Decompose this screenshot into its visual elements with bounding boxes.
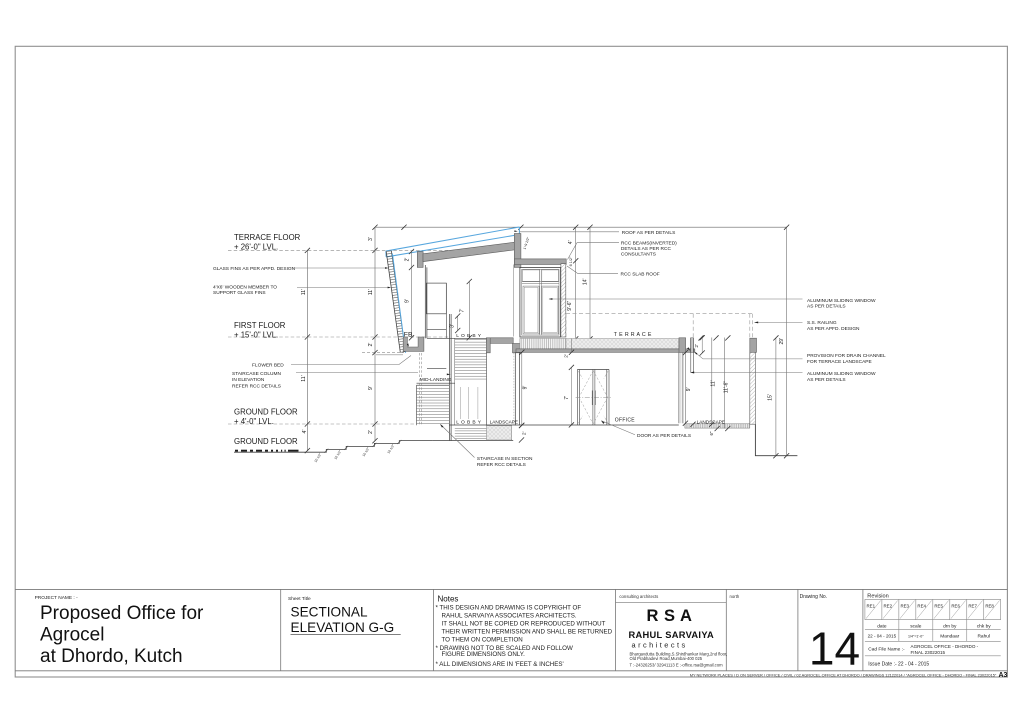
svg-text:OFFICE: OFFICE <box>615 418 635 424</box>
svg-text:DETAILS AS PER RCC: DETAILS AS PER RCC <box>621 246 672 252</box>
svg-text:THEIR WRITTEN PERMISSION AND S: THEIR WRITTEN PERMISSION AND SHALL BE RE… <box>442 629 613 636</box>
svg-text:at Dhordo, Kutch: at Dhordo, Kutch <box>40 646 183 667</box>
svg-text:AS PER DETAILS: AS PER DETAILS <box>807 377 846 383</box>
svg-text:+ 26'-0" LVL.: + 26'-0" LVL. <box>234 243 278 252</box>
svg-text:9': 9' <box>368 386 374 390</box>
svg-text:CONSULTANTS: CONSULTANTS <box>621 252 656 258</box>
svg-text:6": 6" <box>709 431 714 435</box>
svg-text:11': 11' <box>711 380 717 386</box>
svg-text:RE5: RE5 <box>934 604 943 609</box>
svg-text:GROUND FLOOR: GROUND FLOOR <box>234 437 298 446</box>
svg-text:14: 14 <box>809 622 860 674</box>
svg-text:ELEVATION G-G: ELEVATION G-G <box>291 620 395 635</box>
svg-text:LANDSCAPE: LANDSCAPE <box>697 420 725 425</box>
svg-text:PROJECT NAME : -: PROJECT NAME : - <box>35 595 78 601</box>
svg-text:4': 4' <box>302 430 308 434</box>
svg-text:a r c h i t e c t s: a r c h i t e c t s <box>632 641 686 650</box>
svg-text:ALUMINUM SLIDING WINDOW: ALUMINUM SLIDING WINDOW <box>807 298 876 304</box>
svg-text:T :-24326253/ 32941113 E :-of: T :-24326253/ 32941113 E :-office.rsa@gm… <box>630 663 724 668</box>
svg-text:Drawing No.: Drawing No. <box>800 594 828 600</box>
svg-text:STAIRCASE COLUMN: STAIRCASE COLUMN <box>232 371 281 377</box>
svg-text:* ALL DIMENSIONS ARE IN 'FEET: * ALL DIMENSIONS ARE IN 'FEET & INCHES' <box>436 661 564 668</box>
svg-text:2': 2' <box>368 430 374 434</box>
svg-text:11': 11' <box>301 375 307 381</box>
svg-text:RE4: RE4 <box>917 604 926 609</box>
svg-text:+ 15'-0" LVL.: + 15'-0" LVL. <box>234 331 278 340</box>
svg-text:2': 2' <box>405 258 411 262</box>
svg-text:drn by: drn by <box>943 623 957 629</box>
svg-text:AS PER DETAILS: AS PER DETAILS <box>807 304 846 310</box>
svg-text:ROOF AS PER DETAILS: ROOF AS PER DETAILS <box>622 230 676 236</box>
svg-text:FB: FB <box>404 331 413 338</box>
svg-text:11'-6": 11'-6" <box>724 381 730 394</box>
svg-text:Agrocel: Agrocel <box>40 624 104 645</box>
svg-text:Notes: Notes <box>438 595 459 604</box>
svg-text:14': 14' <box>583 279 589 286</box>
svg-text:L O B B Y: L O B B Y <box>456 419 481 425</box>
svg-text:ALUMINUM SLIDING WINDOW: ALUMINUM SLIDING WINDOW <box>807 371 876 377</box>
svg-text:DOOR AS PER DETAILS: DOOR AS PER DETAILS <box>637 433 691 439</box>
svg-text:T E R R A C E: T E R R A C E <box>614 332 652 338</box>
svg-text:PROVISION FOR DRAIN CHANNEL: PROVISION FOR DRAIN CHANNEL <box>807 353 886 359</box>
svg-text:R S A: R S A <box>647 607 693 625</box>
svg-text:Issue Date :- 22 - 04 - 2015: Issue Date :- 22 - 04 - 2015 <box>868 661 929 667</box>
svg-text:IT SHALL NOT BE COPIED OR REPR: IT SHALL NOT BE COPIED OR REPRODUCED WIT… <box>442 620 606 627</box>
svg-text:RCC BEAMS(INVERTED): RCC BEAMS(INVERTED) <box>621 241 677 247</box>
svg-text:MID-LANDING: MID-LANDING <box>420 377 452 383</box>
svg-text:REFER RCC DETAILS: REFER RCC DETAILS <box>477 462 526 468</box>
svg-text:RE2: RE2 <box>883 604 892 609</box>
svg-text:RE7: RE7 <box>968 604 977 609</box>
svg-text:11': 11' <box>368 289 374 295</box>
svg-text:RE8: RE8 <box>985 604 994 609</box>
svg-text:22 - 04 - 2015: 22 - 04 - 2015 <box>868 634 897 639</box>
svg-text:RE3: RE3 <box>900 604 909 609</box>
svg-text:FIRST FLOOR: FIRST FLOOR <box>234 321 286 330</box>
svg-text:A3: A3 <box>999 672 1008 679</box>
svg-text:Old Prabhadevi Road,Mumbai-400: Old Prabhadevi Road,Mumbai-400 025 <box>630 656 703 661</box>
svg-text:FOR TERRACE LANDSCAPE: FOR TERRACE LANDSCAPE <box>807 359 872 365</box>
svg-text:3': 3' <box>450 324 456 328</box>
svg-text:2': 2' <box>368 343 374 347</box>
svg-text:TO THEM ON COMPLETION: TO THEM ON COMPLETION <box>442 637 523 644</box>
svg-text:4': 4' <box>568 240 574 244</box>
svg-text:2': 2' <box>564 354 570 358</box>
svg-text:L O B B Y: L O B B Y <box>456 333 481 339</box>
svg-text:date: date <box>877 623 887 629</box>
svg-text:AS PER APFD. DESIGN: AS PER APFD. DESIGN <box>807 326 860 332</box>
svg-text:FINAL 23022015: FINAL 23022015 <box>911 650 946 655</box>
svg-text:SECTIONAL: SECTIONAL <box>291 604 368 619</box>
svg-text:11': 11' <box>301 289 307 295</box>
svg-text:RE6: RE6 <box>951 604 960 609</box>
svg-text:Sheet Title: Sheet Title <box>288 596 311 602</box>
svg-text:MY NETWORK PLACES / D ON SERVE: MY NETWORK PLACES / D ON SERVER / OFFICE… <box>690 672 997 677</box>
svg-text:STAIRCASE IN SECTION: STAIRCASE IN SECTION <box>477 456 533 462</box>
svg-text:+ 4'-0" LVL.: + 4'-0" LVL. <box>234 417 274 426</box>
svg-text:north: north <box>730 594 740 599</box>
svg-text:9'-6": 9'-6" <box>567 301 573 311</box>
svg-text:7': 7' <box>460 309 466 313</box>
svg-text:RAHUL SARVAIYA: RAHUL SARVAIYA <box>629 630 714 640</box>
svg-text:2': 2' <box>522 431 528 435</box>
svg-text:FLOWER BED: FLOWER BED <box>252 362 284 368</box>
svg-text:TERRACE FLOOR: TERRACE FLOOR <box>234 233 301 242</box>
svg-text:RAHUL SARVAIYA ASSOCIATES ARCH: RAHUL SARVAIYA ASSOCIATES ARCHITECTS. <box>442 612 577 619</box>
svg-text:9': 9' <box>523 386 529 390</box>
svg-text:3': 3' <box>368 237 374 241</box>
svg-text:S.S. RAILING: S.S. RAILING <box>807 320 837 326</box>
svg-text:* THIS DESIGN AND DRAWING IS C: * THIS DESIGN AND DRAWING IS COPYRIGHT O… <box>436 604 582 611</box>
svg-text:2': 2' <box>694 344 700 348</box>
svg-text:IN ELEVATION: IN ELEVATION <box>232 377 265 383</box>
svg-text:REFER RCC DETAILS: REFER RCC DETAILS <box>232 384 281 390</box>
svg-text:FIGURE DIMENSIONS ONLY.: FIGURE DIMENSIONS ONLY. <box>442 651 526 658</box>
svg-text:consulting architects: consulting architects <box>619 594 658 599</box>
svg-text:Rahul: Rahul <box>977 634 990 640</box>
svg-text:9': 9' <box>405 299 411 303</box>
svg-text:Proposed Office for: Proposed Office for <box>40 603 204 624</box>
svg-text:Mandaar: Mandaar <box>940 634 959 640</box>
svg-text:9': 9' <box>686 387 692 391</box>
svg-text:29': 29' <box>779 338 785 345</box>
svg-text:Revision: Revision <box>867 593 888 599</box>
svg-text:SUPPORT GLASS FINS: SUPPORT GLASS FINS <box>213 290 266 296</box>
svg-text:GROUND FLOOR: GROUND FLOOR <box>234 408 298 417</box>
svg-text:4'X6' WOODEN MEMBER TO: 4'X6' WOODEN MEMBER TO <box>213 285 277 291</box>
svg-text:chk by: chk by <box>977 623 991 629</box>
svg-text:6 1/2": 6 1/2" <box>569 256 573 266</box>
svg-text:Cad File Name :-: Cad File Name :- <box>868 647 905 653</box>
svg-text:scale: scale <box>910 623 922 629</box>
svg-text:RCC SLAB ROOF: RCC SLAB ROOF <box>621 271 660 277</box>
svg-text:7': 7' <box>564 396 570 400</box>
svg-text:15': 15' <box>768 394 774 401</box>
svg-text:AGROCEL OFFICE - DHORDO -: AGROCEL OFFICE - DHORDO - <box>911 644 979 649</box>
svg-text:GLASS FINS AS PER APPD. DESIGN: GLASS FINS AS PER APPD. DESIGN <box>213 266 296 272</box>
svg-text:LANDSCAPE: LANDSCAPE <box>490 420 518 425</box>
svg-text:RE1: RE1 <box>867 604 876 609</box>
svg-text:1/4"=1'-0": 1/4"=1'-0" <box>908 635 924 639</box>
